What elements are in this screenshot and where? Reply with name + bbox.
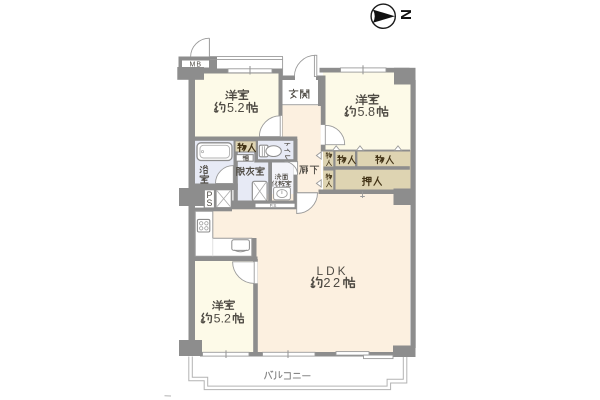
svg-text:S: S [206, 198, 212, 208]
svg-text:5.2: 5.2 [227, 101, 245, 115]
svg-text:N: N [397, 9, 414, 20]
svg-text:MB: MB [190, 61, 203, 68]
svg-text:22: 22 [323, 275, 342, 290]
svg-text:5.8: 5.8 [358, 105, 376, 119]
svg-text:P.S: P.S [270, 203, 277, 208]
svg-text:5.2: 5.2 [214, 312, 231, 326]
